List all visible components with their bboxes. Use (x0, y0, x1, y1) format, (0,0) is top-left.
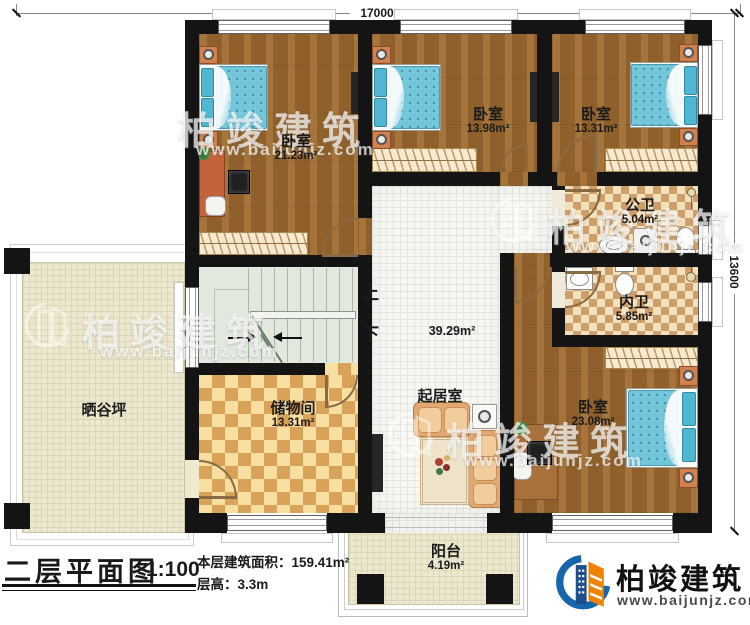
floor-plan: 17000 13600 (0, 0, 750, 625)
balcony-door-opening (385, 513, 487, 533)
lamp-icon (683, 370, 694, 381)
room-name: 阳台 (406, 543, 486, 560)
drawing-scale: 1:100 (146, 558, 200, 582)
bed-pillow (374, 98, 387, 127)
door-opening (358, 218, 372, 256)
floor-area-value: 159.41m² (292, 555, 350, 570)
watermark-building (39, 312, 50, 345)
wall-segment (500, 253, 514, 267)
logo-building-blue (576, 565, 587, 604)
room-area: 13.98m² (448, 123, 528, 136)
wall-segment (552, 186, 565, 190)
room-area: 13.31m² (253, 417, 333, 430)
room-label-public-bathroom: 公卫 5.04m² (600, 197, 680, 227)
toilet-icon (615, 273, 634, 296)
sofa-cushion (473, 483, 497, 505)
lamp-icon (683, 472, 694, 483)
room-label-balcony: 阳台 4.19m² (406, 543, 486, 573)
computer-monitor-icon (228, 170, 250, 194)
room-name: 内卫 (594, 294, 674, 311)
floor-height-value: 3.3m (238, 577, 269, 592)
window (400, 20, 512, 34)
wall-segment (528, 172, 557, 186)
wardrobe-rail (605, 160, 698, 161)
window-sill (712, 40, 723, 120)
room-area: 23.08m² (553, 416, 633, 429)
floor-area-line: 本层建筑面积：159.41m² (197, 551, 349, 571)
room-area: 4.19m² (406, 560, 486, 573)
door-leaf (322, 254, 358, 257)
brand-website: www.baijunjz.com (617, 592, 750, 608)
window (585, 20, 685, 34)
lamp-icon (203, 49, 214, 60)
wardrobe-rail (199, 243, 308, 244)
bed-pillow (682, 428, 696, 462)
wall-segment (597, 172, 712, 186)
wall-segment (552, 308, 565, 335)
wall-segment (487, 513, 552, 533)
window-sill (394, 9, 518, 20)
flower-icon (436, 468, 443, 475)
room-name: 公卫 (600, 197, 680, 214)
lamp-icon (683, 47, 694, 58)
title-underline (2, 584, 196, 587)
floor-height-label: 层高： (197, 577, 238, 592)
wall-segment (185, 255, 372, 267)
threshold-line (385, 517, 487, 518)
bed-pillow (682, 392, 696, 426)
wall-segment (372, 172, 500, 186)
wall-segment (512, 20, 585, 34)
room-name: 卧室 (256, 133, 336, 150)
stair-arrow-line (282, 337, 302, 339)
wardrobe-rail (605, 358, 698, 359)
door-opening (500, 172, 528, 186)
wall-segment (552, 267, 565, 272)
wall-segment (327, 513, 385, 533)
door-leaf (565, 271, 601, 274)
door-opening (552, 272, 565, 308)
watermark-logo-icon (116, 95, 168, 157)
yard-post (4, 503, 30, 529)
room-label-bedroom-nw: 卧室 21.23m² (256, 133, 336, 163)
door-opening (514, 253, 550, 267)
balcony-post (486, 574, 513, 604)
wall-segment (185, 513, 227, 533)
window (698, 282, 712, 322)
floor-area-label: 本层建筑面积： (197, 555, 292, 570)
window-sill (221, 533, 333, 543)
door-leaf (565, 189, 601, 192)
watermark-logo-icon (486, 192, 538, 254)
brand-logo-icon (554, 553, 612, 617)
window (218, 20, 330, 34)
tv-icon (530, 72, 537, 122)
wall-segment (500, 267, 514, 513)
room-name: 卧室 (553, 399, 633, 416)
wall-segment (185, 363, 325, 375)
stair-arrow-icon (273, 332, 282, 342)
wardrobe-rail (372, 160, 477, 161)
nightstand (679, 128, 698, 146)
window (552, 515, 673, 531)
flower-icon (435, 458, 443, 466)
watermark-building (403, 421, 414, 454)
nightstand (199, 46, 218, 64)
stairs-down-label: 下 (362, 320, 379, 345)
watermark-url: www.baijunjz.com (100, 342, 279, 362)
floor-height-line: 层高：3.3m (197, 573, 268, 593)
bed-pillow (374, 68, 387, 97)
living-room-name: 起居室 (400, 388, 480, 405)
room-area: 5.04m² (600, 214, 680, 227)
room-label-private-bathroom: 内卫 5.85m² (594, 294, 674, 324)
lamp-icon (376, 134, 387, 145)
door-opening (557, 172, 597, 186)
window-sill (579, 9, 691, 20)
wall-segment (673, 513, 712, 533)
desk-chair (205, 196, 226, 216)
wall-segment (552, 335, 712, 347)
room-name: 储物间 (253, 400, 333, 417)
floor-drain-icon (686, 272, 696, 282)
window (227, 515, 327, 531)
watermark-url: www.baijunjz.com (566, 237, 745, 257)
room-label-drying-yard: 晒谷坪 (64, 402, 144, 419)
title-underline (2, 590, 196, 591)
room-label-bedroom-n: 卧室 13.98m² (448, 106, 528, 136)
door-leaf (199, 496, 237, 499)
lamp-icon (683, 131, 694, 142)
bed-pillow (684, 66, 697, 95)
bed-pillow (201, 68, 214, 97)
room-name: 卧室 (556, 106, 636, 123)
window-sill (212, 9, 336, 20)
threshold-line (385, 527, 487, 528)
living-room-area: 39.29m² (412, 325, 492, 338)
watermark-logo-icon (20, 297, 72, 359)
floor-drain-icon (687, 188, 696, 197)
nightstand (679, 366, 698, 386)
yard-post (4, 248, 30, 274)
watermark-building (505, 207, 516, 240)
watermark-building (135, 110, 146, 143)
wall-segment (185, 368, 199, 460)
nightstand (679, 44, 698, 62)
wall-segment (537, 34, 552, 172)
stair-outline (214, 289, 250, 290)
nightstand (679, 468, 698, 488)
room-area: 5.85m² (594, 311, 674, 324)
door-opening (185, 460, 199, 498)
lamp-icon (376, 49, 387, 60)
stairs-up-label: 上 (362, 279, 379, 304)
door-leaf (594, 134, 597, 172)
window-sill (546, 533, 679, 543)
watermark-logo-icon (384, 406, 436, 468)
tv-icon (372, 434, 383, 492)
door-opening (325, 363, 358, 375)
room-name: 卧室 (448, 106, 528, 123)
bed-pillow (684, 96, 697, 125)
wall-segment (330, 20, 400, 34)
room-area: 13.31m² (556, 123, 636, 136)
wall-segment (698, 322, 712, 533)
watermark-url: www.baijunjz.com (464, 451, 643, 471)
door-leaf (525, 144, 528, 172)
room-area: 21.23m² (256, 150, 336, 163)
nightstand (372, 46, 391, 64)
door-leaf (514, 267, 517, 303)
window (698, 45, 712, 115)
wall-segment (698, 20, 712, 45)
balcony-post (357, 574, 384, 604)
window-sill (712, 277, 723, 327)
room-label-storage: 储物间 13.31m² (253, 400, 333, 430)
room-label-bedroom-se: 卧室 23.08m² (553, 399, 633, 429)
room-label-bedroom-ne: 卧室 13.31m² (556, 106, 636, 136)
